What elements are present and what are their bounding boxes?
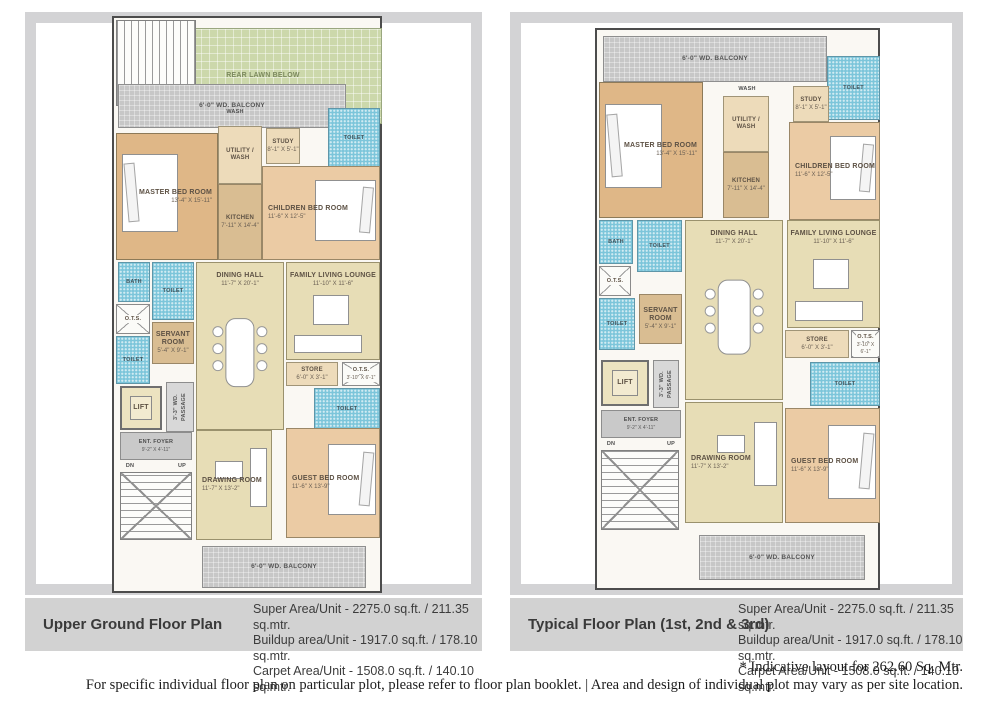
room-label: CHILDREN BED ROOM <box>795 163 875 171</box>
room-label: TOILET <box>843 85 864 91</box>
room-dimensions: 11'-10" X 11'-6" <box>813 239 853 246</box>
room-dimensions: 11'-7" X 13'-2" <box>202 486 239 493</box>
toilet-top: TOILET <box>328 108 380 168</box>
servant-room: SERVANT ROOM5'-4" X 9'-1" <box>639 294 682 344</box>
room-label: TOILET <box>344 135 365 141</box>
ots-2: O.T.S.3'-10" X 6'-1" <box>342 362 380 386</box>
room-dimensions: 11'-7" X 13'-2" <box>691 464 728 471</box>
room-dimensions: 6'-0" X 3'-1" <box>296 375 327 382</box>
room-label: 3'-3" WD. PASSAGE <box>658 361 674 407</box>
drawing-room: DRAWING ROOM11'-7" X 13'-2" <box>685 402 783 523</box>
toilet-4: TOILET <box>314 388 380 430</box>
room-label: UTILITY / WASH <box>724 117 768 131</box>
room-label: FAMILY LIVING LOUNGE <box>790 230 876 238</box>
room-dimensions: 7'-11" X 14'-4" <box>221 223 258 230</box>
room-label: TOILET <box>337 406 358 412</box>
dn-label: DN <box>120 460 140 471</box>
lift: LIFT <box>120 386 162 430</box>
room-label: O.T.S. <box>856 333 874 341</box>
room-label: GUEST BED ROOM <box>791 458 858 466</box>
balcony-bottom: 6'-0" WD. BALCONY <box>202 546 366 588</box>
dn-label: DN <box>601 438 621 449</box>
room-label: LIFT <box>133 404 149 412</box>
room-label: KITCHEN <box>732 178 760 185</box>
room-label: FAMILY LIVING LOUNGE <box>290 272 376 280</box>
room-dimensions: 3'-10" X 6'-1" <box>347 375 376 382</box>
room-label: KITCHEN <box>226 215 254 222</box>
toilet-top: TOILET <box>827 56 880 120</box>
room-label: 6'-0" WD. BALCONY <box>251 563 317 571</box>
dining-table-icon <box>225 318 254 388</box>
children-bed-room: CHILDREN BED ROOM11'-6" X 12'-5" <box>262 166 380 260</box>
room-label: TOILET <box>163 288 184 294</box>
up-label: UP <box>661 438 681 449</box>
study: STUDY8'-1" X 5'-1" <box>266 128 300 164</box>
room-label: STORE <box>806 337 828 344</box>
ots-1: O.T.S. <box>599 266 631 296</box>
room-dimensions: 11'-6" X 12'-5" <box>268 214 305 221</box>
master-bed-room: MASTER BED ROOM13'-4" X 15'-11" <box>599 82 703 218</box>
toilet-2: TOILET <box>152 262 194 320</box>
up-label: UP <box>172 460 192 471</box>
room-label: ENT. FOYER <box>139 438 173 446</box>
room-dimensions: 11'-6" X 12'-5" <box>795 172 832 179</box>
room-dimensions: 9'-2" X 4'-11" <box>627 425 655 432</box>
room-label: TOILET <box>607 321 628 327</box>
toilet-3: TOILET <box>599 298 635 350</box>
room-label: BATH <box>126 279 142 285</box>
dining-hall: DINING HALL11'-7" X 20'-1" <box>685 220 783 400</box>
guest-bed-room: GUEST BED ROOM11'-6" X 13'-9" <box>785 408 880 523</box>
stairs-main <box>120 472 192 540</box>
store: STORE6'-0" X 3'-1" <box>286 362 338 386</box>
room-dimensions: 8'-1" X 5'-1" <box>267 147 298 154</box>
room-label: REAR LAWN BELOW <box>226 72 299 80</box>
room-dimensions: 11'-6" X 13'-9" <box>292 484 329 491</box>
room-dimensions: 8'-1" X 5'-1" <box>795 105 826 112</box>
room-label: 3'-3" WD. PASSAGE <box>172 383 188 431</box>
room-label: TOILET <box>835 381 856 387</box>
room-dimensions: 7'-11" X 14'-4" <box>727 186 764 193</box>
room-label: WASH <box>738 85 755 93</box>
room-label: TOILET <box>123 357 144 363</box>
family-living-lounge: FAMILY LIVING LOUNGE11'-10" X 11'-6" <box>286 262 380 360</box>
room-label: STUDY <box>800 97 821 104</box>
drawing-room: DRAWING ROOM11'-7" X 13'-2" <box>196 430 272 540</box>
disclaimer-note: For specific individual floor plan on pa… <box>86 676 963 694</box>
right-plan-title: Typical Floor Plan (1st, 2nd & 3rd) <box>528 598 769 651</box>
passage: 3'-3" WD. PASSAGE <box>653 360 679 408</box>
room-label: STORE <box>301 367 323 374</box>
ent-foyer: ENT. FOYER9'-2" X 4'-11" <box>601 410 681 438</box>
ots-2: O.T.S.3'-10" X 6'-1" <box>851 330 880 358</box>
store: STORE6'-0" X 3'-1" <box>785 330 849 358</box>
room-label: WASH <box>226 108 243 116</box>
room-label: MASTER BED ROOM <box>624 142 697 150</box>
room-dimensions: 11'-6" X 13'-9" <box>791 467 828 474</box>
ent-foyer: ENT. FOYER9'-2" X 4'-11" <box>120 432 192 460</box>
room-label: DN <box>126 462 134 470</box>
room-label: CHILDREN BED ROOM <box>268 205 348 213</box>
sofa-icon <box>294 335 362 353</box>
room-label: O.T.S. <box>124 315 142 323</box>
room-dimensions: 13'-4" X 15'-11" <box>171 198 212 205</box>
indicative-layout-note: * Indicative layout for 262.60 Sq. Mtr. <box>86 658 963 676</box>
lift: LIFT <box>601 360 649 406</box>
room-label: DINING HALL <box>710 230 757 238</box>
room-label: UP <box>178 462 186 470</box>
room-dimensions: 5'-4" X 9'-1" <box>645 324 676 331</box>
left-caption-bar: Upper Ground Floor Plan Super Area/Unit … <box>25 598 482 651</box>
toilet-4: TOILET <box>810 362 880 406</box>
room-label: ENT. FOYER <box>624 416 658 424</box>
room-label: DRAWING ROOM <box>691 455 751 463</box>
room-dimensions: 9'-2" X 4'-11" <box>142 447 170 454</box>
ots-1: O.T.S. <box>116 304 150 334</box>
room-dimensions: 11'-7" X 20'-1" <box>715 239 752 246</box>
footer-notes: * Indicative layout for 262.60 Sq. Mtr. … <box>86 658 963 694</box>
typical-floor-plan-drawing: 6'-0" WD. BALCONYTOILETWASHMASTER BED RO… <box>595 28 880 590</box>
passage: 3'-3" WD. PASSAGE <box>166 382 194 432</box>
wash-label: WASH <box>731 82 763 96</box>
right-caption-bar: Typical Floor Plan (1st, 2nd & 3rd) Supe… <box>510 598 963 651</box>
room-label: 6'-0" WD. BALCONY <box>749 554 815 562</box>
room-label: DRAWING ROOM <box>202 477 262 485</box>
room-label: SERVANT ROOM <box>153 331 193 347</box>
room-dimensions: 5'-4" X 9'-1" <box>157 348 188 355</box>
super-area-line: Super Area/Unit - 2275.0 sq.ft. / 211.35… <box>738 602 963 633</box>
balcony-top: 6'-0" WD. BALCONY <box>118 84 346 128</box>
room-label: UP <box>667 440 675 448</box>
super-area-line: Super Area/Unit - 2275.0 sq.ft. / 211.35… <box>253 602 482 633</box>
dining-table-icon <box>718 280 751 355</box>
toilet-3: TOILET <box>116 336 150 384</box>
room-label: TOILET <box>649 243 670 249</box>
kitchen: KITCHEN7'-11" X 14'-4" <box>218 184 262 260</box>
study: STUDY8'-1" X 5'-1" <box>793 86 829 122</box>
room-dimensions: 3'-10" X 6'-1" <box>852 342 879 356</box>
utility-wash: UTILITY / WASH <box>218 126 262 184</box>
room-label: MASTER BED ROOM <box>139 189 212 197</box>
room-label: GUEST BED ROOM <box>292 475 359 483</box>
bath: BATH <box>118 262 150 302</box>
balcony-top: 6'-0" WD. BALCONY <box>603 36 827 82</box>
room-label: SERVANT ROOM <box>640 307 681 323</box>
guest-bed-room: GUEST BED ROOM11'-6" X 13'-9" <box>286 428 380 538</box>
sofa-icon <box>754 422 777 486</box>
room-label: LIFT <box>617 379 633 387</box>
toilet-2: TOILET <box>637 220 682 272</box>
room-dimensions: 11'-10" X 11'-6" <box>313 281 353 288</box>
servant-room: SERVANT ROOM5'-4" X 9'-1" <box>152 322 194 364</box>
children-bed-room: CHILDREN BED ROOM11'-6" X 12'-5" <box>789 122 880 220</box>
left-plan-title: Upper Ground Floor Plan <box>43 598 222 651</box>
kitchen: KITCHEN7'-11" X 14'-4" <box>723 152 769 218</box>
upper-ground-floor-plan-drawing: REAR LAWN BELOW6'-0" WD. BALCONYTOILETWA… <box>112 16 382 593</box>
utility-wash: UTILITY / WASH <box>723 96 769 152</box>
room-dimensions: 13'-4" X 15'-11" <box>656 151 697 158</box>
room-label: O.T.S. <box>606 277 624 285</box>
room-label: STUDY <box>272 139 293 146</box>
bath: BATH <box>599 220 633 264</box>
balcony-bottom: 6'-0" WD. BALCONY <box>699 535 865 580</box>
room-label: DINING HALL <box>216 272 263 280</box>
room-dimensions: 6'-0" X 3'-1" <box>801 345 832 352</box>
sofa-icon <box>795 301 862 321</box>
dining-hall: DINING HALL11'-7" X 20'-1" <box>196 262 284 430</box>
room-label: BATH <box>608 239 624 245</box>
family-living-lounge: FAMILY LIVING LOUNGE11'-10" X 11'-6" <box>787 220 880 328</box>
stairs-main <box>601 450 679 530</box>
room-label: UTILITY / WASH <box>219 148 261 162</box>
room-label: 6'-0" WD. BALCONY <box>682 55 748 63</box>
room-dimensions: 11'-7" X 20'-1" <box>221 281 258 288</box>
master-bed-room: MASTER BED ROOM13'-4" X 15'-11" <box>116 133 218 260</box>
room-label: DN <box>607 440 615 448</box>
room-label: O.T.S. <box>352 366 370 374</box>
